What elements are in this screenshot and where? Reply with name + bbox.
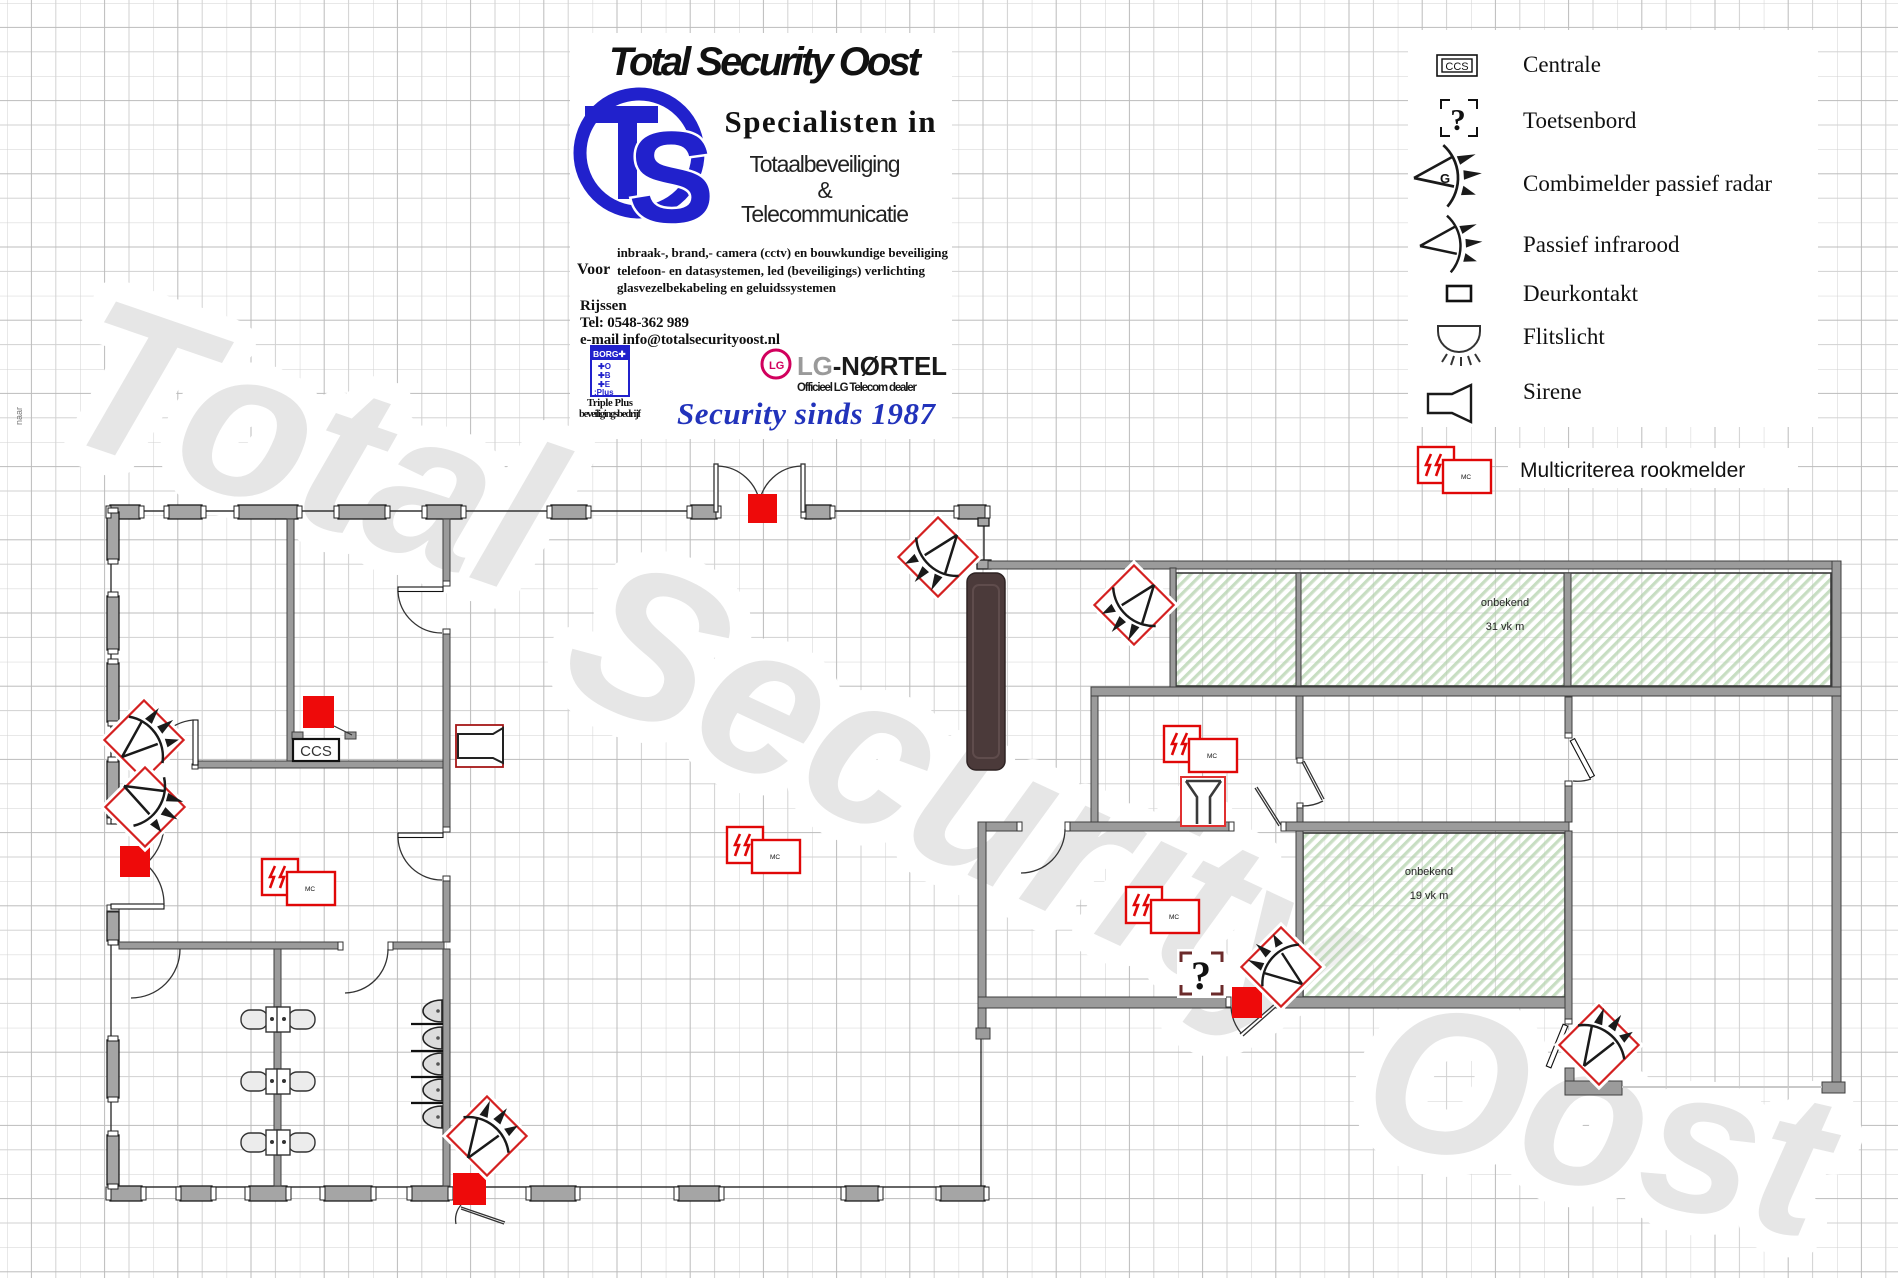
svg-text:inbraak-, brand,- camera (cctv: inbraak-, brand,- camera (cctv) en bouwk… xyxy=(617,245,949,260)
svg-text:Sirene: Sirene xyxy=(1523,379,1582,404)
svg-text:Passief infrarood: Passief infrarood xyxy=(1523,232,1680,257)
svg-text:G: G xyxy=(1440,171,1450,186)
svg-text:Rijssen: Rijssen xyxy=(580,298,627,314)
svg-text:LG-NØRTEL: LG-NØRTEL xyxy=(797,351,947,381)
svg-text:&: & xyxy=(817,177,832,203)
svg-text:?: ? xyxy=(1450,102,1466,137)
svg-text:19 vk m: 19 vk m xyxy=(1410,890,1449,902)
svg-text:Tel: 0548-362 989: Tel: 0548-362 989 xyxy=(580,315,689,331)
svg-text:glasvezelbekabeling en geluids: glasvezelbekabeling en geluidssystemen xyxy=(617,280,837,295)
svg-text:?: ? xyxy=(1191,953,1211,998)
svg-text:Deurkontakt: Deurkontakt xyxy=(1523,281,1639,306)
svg-text:S: S xyxy=(628,104,715,250)
svg-text:onbekend: onbekend xyxy=(1481,597,1529,609)
svg-text:Totaalbeveiliging: Totaalbeveiliging xyxy=(750,151,901,177)
svg-text:telefoon- en datasystemen, led: telefoon- en datasystemen, led (beveilig… xyxy=(617,263,926,278)
svg-text:Total Security Oost: Total Security Oost xyxy=(609,40,923,84)
svg-text::Plus: :Plus xyxy=(594,388,614,397)
svg-text:CCS: CCS xyxy=(300,743,332,760)
svg-text:Toetsenbord: Toetsenbord xyxy=(1523,108,1637,133)
svg-text:Specialisten in: Specialisten in xyxy=(725,104,936,139)
svg-text:Officieel LG Telecom dealer: Officieel LG Telecom dealer xyxy=(797,382,918,394)
svg-text:BORG✚: BORG✚ xyxy=(593,349,627,359)
svg-text:CCS: CCS xyxy=(1445,61,1468,73)
svg-text:beveiligingsbedrijf: beveiligingsbedrijf xyxy=(579,409,642,420)
svg-text:Multicriterea rookmelder: Multicriterea rookmelder xyxy=(1520,459,1745,482)
svg-text:Flitslicht: Flitslicht xyxy=(1523,324,1605,349)
svg-text:onbekend: onbekend xyxy=(1405,866,1453,878)
svg-text:Triple Plus: Triple Plus xyxy=(587,398,633,409)
svg-text:Combimelder passief radar: Combimelder passief radar xyxy=(1523,171,1772,196)
svg-text:31 vk m: 31 vk m xyxy=(1486,621,1525,633)
svg-text:LG: LG xyxy=(769,360,784,372)
svg-text:naar: naar xyxy=(14,407,24,425)
svg-text:Voor: Voor xyxy=(577,261,610,278)
svg-text:✚B: ✚B xyxy=(598,371,611,380)
svg-text:Security sinds 1987: Security sinds 1987 xyxy=(677,396,937,431)
svg-text:Telecommunicatie: Telecommunicatie xyxy=(741,201,909,227)
svg-text:✚O: ✚O xyxy=(598,362,611,371)
svg-text:Centrale: Centrale xyxy=(1523,52,1601,77)
